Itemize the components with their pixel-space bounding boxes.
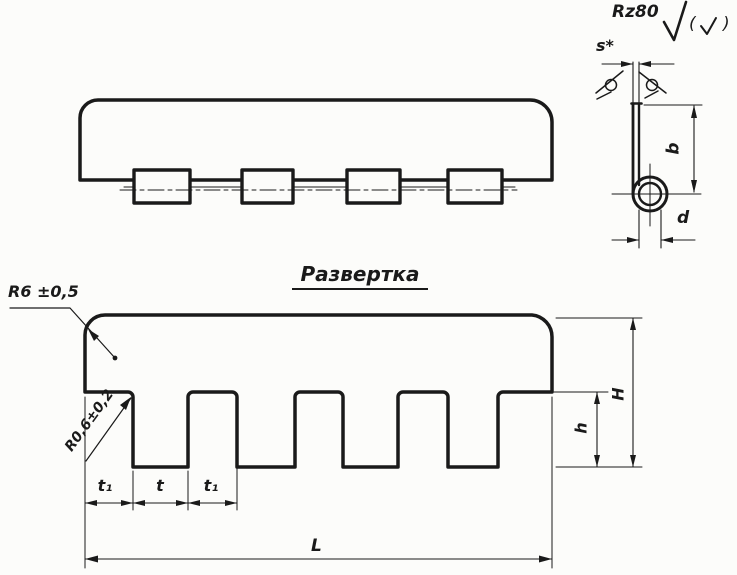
dim-pitch-chain [85, 500, 237, 506]
section-height-label: b [666, 142, 683, 154]
surface-finish-alt-check-icon [701, 18, 716, 34]
flat-pattern-title: Развертка [292, 264, 428, 290]
edge-offset-label: t₁ [92, 478, 118, 494]
dim-total-height [630, 318, 636, 467]
tab-height-label: h [574, 422, 590, 433]
flat-pattern-outline [85, 315, 552, 467]
knuckle-rect [242, 170, 293, 203]
no-removal-symbol-icon [639, 72, 666, 98]
roughness-paren-open: ( [689, 16, 696, 33]
tab-pitch-label: t [150, 478, 170, 494]
roughness-value: Rz80 [612, 4, 659, 21]
total-height-label: H [611, 387, 627, 400]
dim-tab-height [594, 392, 600, 467]
knuckle-rect [347, 170, 400, 203]
corner-radius-label: R6 ±0,5 [8, 284, 79, 300]
dim-s [602, 61, 674, 104]
flat-pattern-view [10, 308, 642, 568]
top-view [80, 100, 552, 203]
extension-lines-right [554, 318, 642, 467]
knuckle-rect [448, 170, 502, 203]
surface-finish-check-icon [664, 2, 686, 40]
no-removal-symbol-icon [596, 71, 623, 99]
roughness-paren-close: ) [723, 16, 730, 33]
section-diameter-label: d [677, 210, 689, 227]
dim-length [85, 556, 552, 563]
length-label: L [311, 538, 322, 555]
knuckle-rect [134, 170, 190, 203]
leaf-outline [80, 100, 552, 180]
gap-label: t₁ [198, 478, 224, 494]
section-thickness-label: s* [596, 38, 614, 54]
engineering-drawing-sheet: Rz80 ( ) s* b d Развертка R6 ±0,5 R0,6±0… [0, 0, 737, 575]
